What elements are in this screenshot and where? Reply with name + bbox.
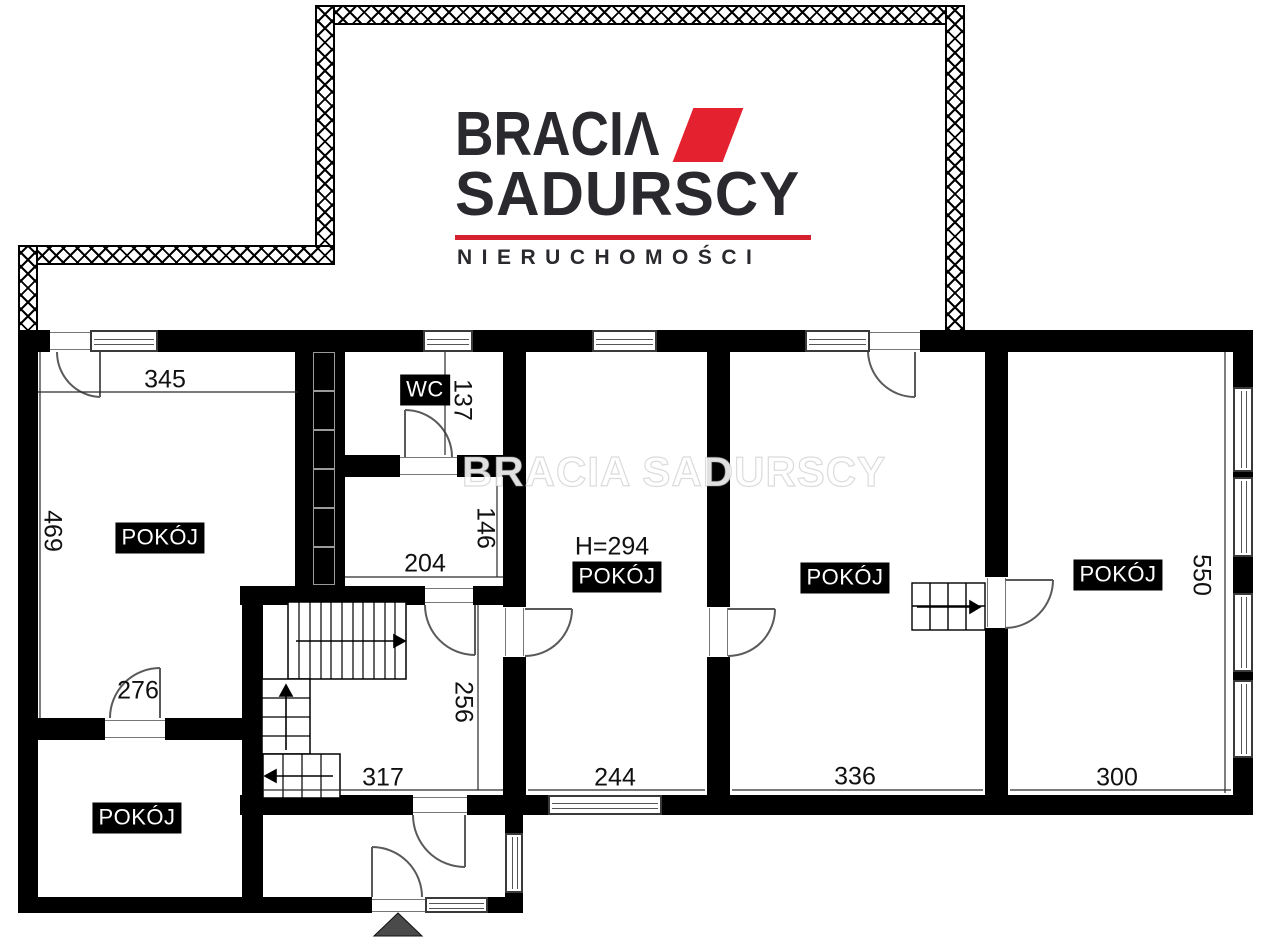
dim-550: 550 xyxy=(1187,554,1216,596)
dim-276: 276 xyxy=(117,677,159,706)
window xyxy=(1233,593,1253,672)
outer-wall-bottom xyxy=(240,795,413,815)
window xyxy=(423,330,473,352)
terrace-door-sill xyxy=(50,332,90,350)
outer-wall-bottom xyxy=(662,795,1253,815)
dim-244: 244 xyxy=(594,764,636,793)
floor-plan-canvas: BRACIA SADURSCY POKÓJ POKÓJ POKÓJ POKÓJ … xyxy=(0,0,1280,942)
interior-wall-hall-right xyxy=(503,657,526,815)
room-bottom-left-wall-top xyxy=(165,718,262,740)
dim-137: 137 xyxy=(448,379,477,421)
window xyxy=(1233,387,1253,472)
dim-469: 469 xyxy=(38,510,67,552)
right-rooms-door-sill xyxy=(987,578,1006,627)
logo-brand-line2: SADURSCY xyxy=(455,164,800,226)
room-label: POKÓJ xyxy=(572,562,661,593)
vestibule-wall-right xyxy=(505,893,523,913)
door-arcs xyxy=(57,352,1053,897)
outer-wall-right xyxy=(1233,672,1253,680)
outer-wall-top xyxy=(158,330,423,352)
terrace-wall-left-upper xyxy=(315,5,335,250)
vestibule-wall-bottom xyxy=(18,897,372,913)
terrace-wall-top xyxy=(315,5,965,25)
door-steps xyxy=(912,583,985,630)
outer-wall-left xyxy=(18,330,38,913)
window xyxy=(805,330,870,352)
dim-345: 345 xyxy=(144,366,186,395)
room-bottom-left-wall-top xyxy=(18,718,105,740)
window xyxy=(592,330,657,352)
dim-146: 146 xyxy=(471,507,500,549)
terrace-door-sill xyxy=(870,332,920,350)
outer-wall-top xyxy=(920,330,1233,352)
outer-wall-right xyxy=(1233,330,1253,387)
stair-direction-arrows xyxy=(265,635,405,782)
terrace-wall-right xyxy=(945,5,965,345)
dim-300: 300 xyxy=(1096,764,1138,793)
wc-door-sill xyxy=(400,457,457,475)
hall-wall-top xyxy=(473,586,505,605)
terrace-wall-middle xyxy=(18,245,335,265)
entrance-arrow-marker xyxy=(374,913,422,936)
interior-wall-right-rooms xyxy=(985,352,1008,577)
window xyxy=(425,897,488,913)
hall-vestibule-door-sill xyxy=(413,797,467,813)
hall-door-sill xyxy=(425,588,473,603)
door-steps-arrow xyxy=(917,601,980,613)
vestibule-wall-right xyxy=(505,815,523,833)
room-label: POKÓJ xyxy=(1073,560,1162,591)
dim-204: 204 xyxy=(404,550,446,579)
wc-label: WC xyxy=(400,375,450,406)
hall-center-door-sill xyxy=(505,608,524,656)
entrance-door-sill xyxy=(372,899,425,912)
interior-wall-center-right xyxy=(707,657,730,797)
room-label: POKÓJ xyxy=(800,563,889,594)
logo-tagline: NIERUCHOMOŚCI xyxy=(457,246,761,270)
window xyxy=(505,833,523,893)
logo-red-rule xyxy=(455,235,811,240)
center-room-door-sill xyxy=(709,608,728,656)
window xyxy=(1233,477,1253,557)
outer-wall-top xyxy=(473,330,592,352)
dim-336: 336 xyxy=(834,763,876,792)
chimney-flue-shaft xyxy=(313,352,335,585)
logo-red-parallelogram-icon xyxy=(673,108,744,162)
terrace-wall-left-lower xyxy=(18,245,38,340)
room-label: POKÓJ xyxy=(115,523,204,554)
outer-wall-top xyxy=(657,330,805,352)
window xyxy=(90,330,158,352)
room-bottom-left-door-sill xyxy=(105,720,165,738)
window xyxy=(548,795,662,815)
interior-wall-right-rooms xyxy=(985,628,1008,797)
window xyxy=(1233,680,1253,758)
height-note: H=294 xyxy=(575,533,649,562)
dim-317: 317 xyxy=(362,764,404,793)
interior-wall-hall-left xyxy=(242,586,263,913)
outer-wall-right xyxy=(1233,557,1253,593)
wc-wall-bottom xyxy=(345,455,400,477)
watermark-text: BRACIA SADURSCY xyxy=(462,448,886,496)
room-label: POKÓJ xyxy=(92,803,181,834)
hall-wall-top xyxy=(240,586,425,605)
dim-256: 256 xyxy=(449,681,478,723)
logo-brand-line1: BRACIΛ xyxy=(455,104,659,166)
